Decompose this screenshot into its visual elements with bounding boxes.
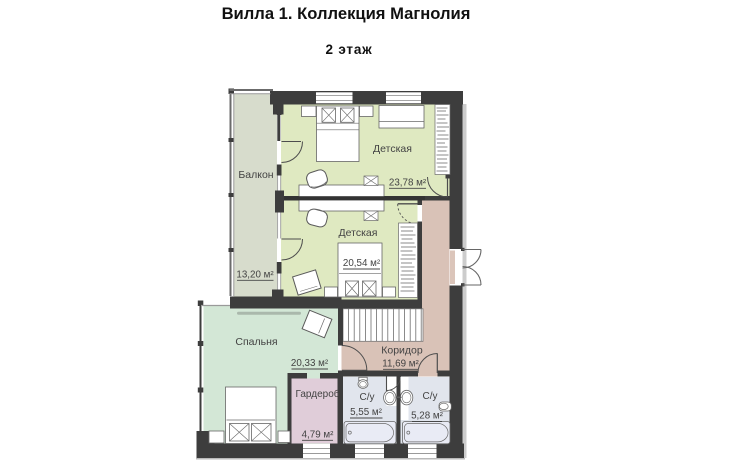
svg-text:4,79 м²: 4,79 м²: [302, 430, 335, 441]
svg-text:Спальня: Спальня: [235, 336, 277, 348]
svg-text:Коридор: Коридор: [381, 345, 423, 357]
svg-text:Детская: Детская: [339, 227, 378, 239]
svg-text:20,33 м²: 20,33 м²: [291, 358, 329, 369]
svg-text:С/у: С/у: [423, 391, 438, 402]
svg-text:11,69 м²: 11,69 м²: [382, 358, 419, 369]
svg-text:20,54 м²: 20,54 м²: [343, 258, 381, 269]
svg-text:5,55 м²: 5,55 м²: [350, 407, 383, 418]
svg-text:Гардероб: Гардероб: [296, 388, 340, 400]
svg-text:Балкон: Балкон: [238, 169, 273, 181]
svg-text:С/у: С/у: [360, 392, 375, 403]
svg-text:5,28 м²: 5,28 м²: [411, 411, 444, 422]
svg-text:13,20 м²: 13,20 м²: [236, 270, 274, 281]
svg-text:Детская: Детская: [373, 143, 412, 155]
svg-text:23,78 м²: 23,78 м²: [389, 178, 427, 189]
